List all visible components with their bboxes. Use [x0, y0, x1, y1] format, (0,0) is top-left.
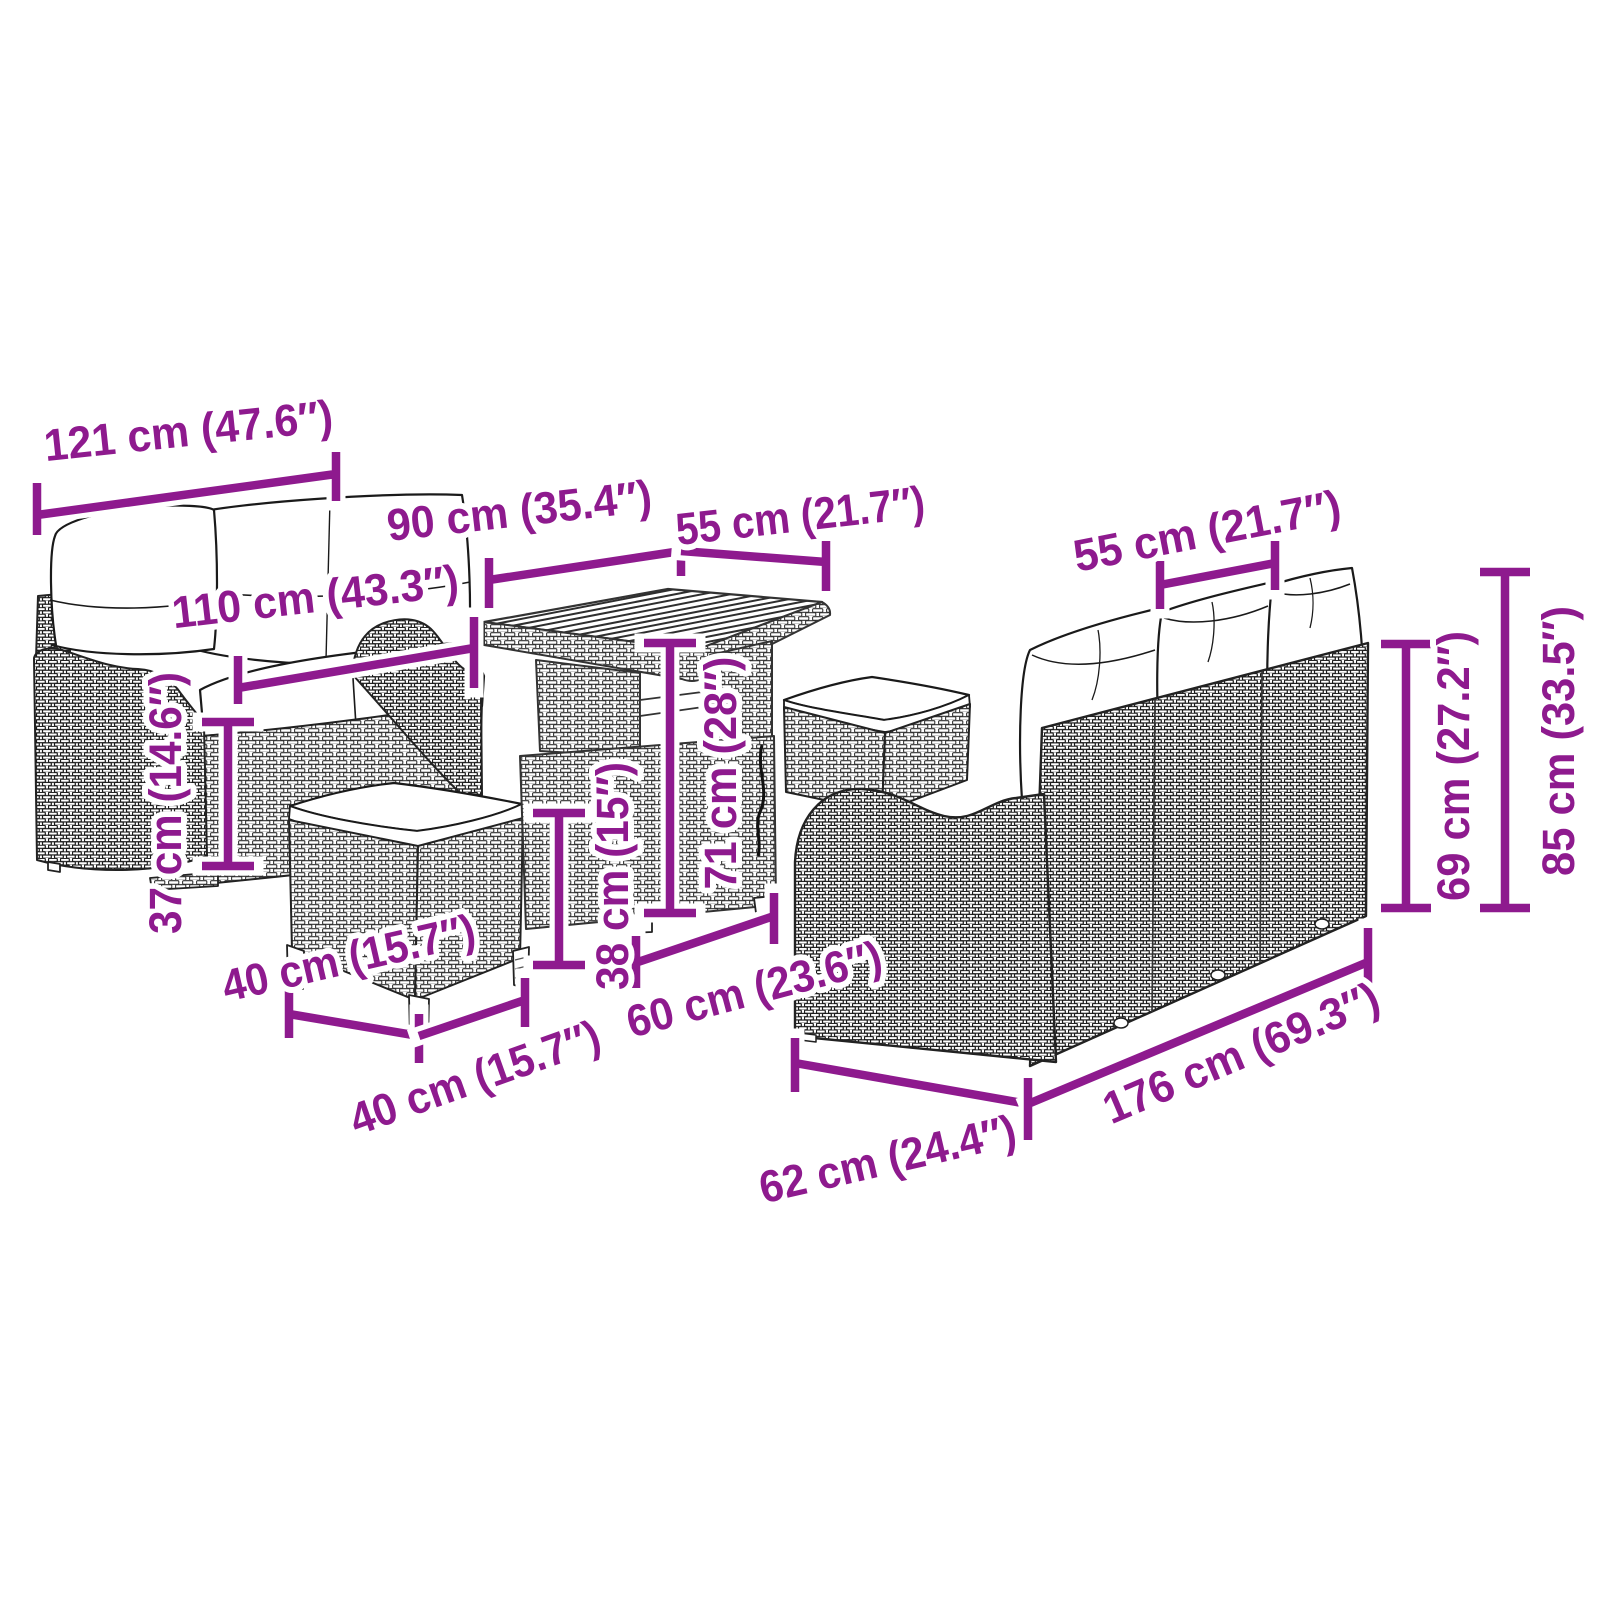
svg-text:69 cm (27.2″): 69 cm (27.2″) — [1428, 631, 1479, 901]
svg-text:37 cm (14.6″): 37 cm (14.6″) — [140, 672, 191, 934]
svg-text:85 cm (33.5″): 85 cm (33.5″) — [1533, 606, 1584, 876]
svg-text:38 cm (15″): 38 cm (15″) — [587, 762, 638, 990]
svg-text:71 cm (28″): 71 cm (28″) — [695, 657, 746, 890]
